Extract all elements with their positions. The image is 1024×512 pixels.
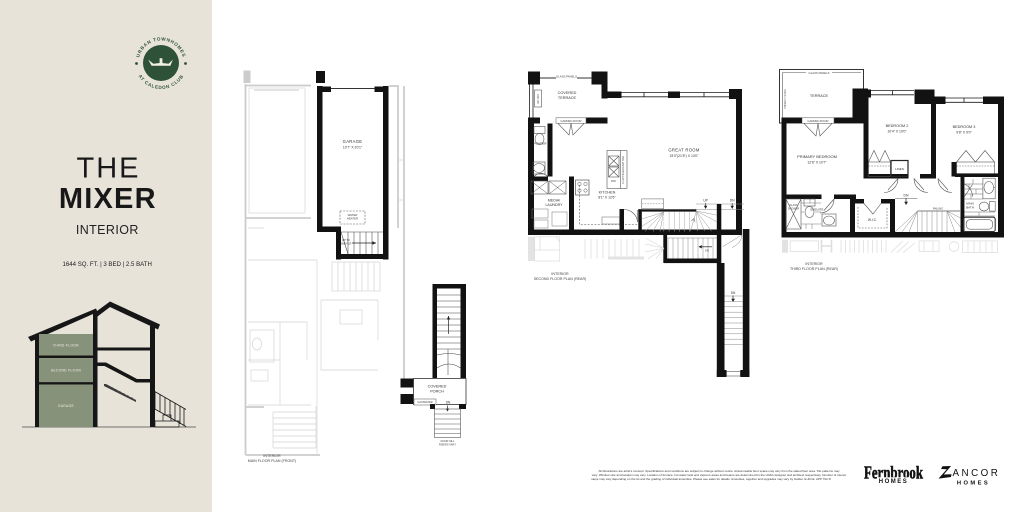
svg-text:INTERIOR: INTERIOR (263, 454, 281, 458)
svg-text:DOOR SILL: DOOR SILL (441, 439, 455, 443)
svg-text:RAILING: RAILING (933, 207, 943, 211)
svg-text:DN: DN (730, 199, 735, 203)
svg-text:INTERIOR: INTERIOR (76, 223, 139, 237)
svg-text:PORCH: PORCH (430, 390, 444, 394)
svg-text:HOMES: HOMES (957, 481, 990, 487)
svg-text:DN: DN (446, 401, 451, 405)
svg-text:POWDER: POWDER (533, 142, 546, 146)
svg-text:GREAT ROOM: GREAT ROOM (668, 148, 699, 153)
svg-text:10'7" X 20'1": 10'7" X 20'1" (343, 146, 363, 150)
svg-text:FLUSH BREAKFAST BAR: FLUSH BREAKFAST BAR (622, 156, 625, 184)
svg-text:THIRD FLOOR: THIRD FLOOR (53, 344, 79, 348)
svg-text:GAS/WATER: GAS/WATER (417, 400, 432, 404)
svg-text:A/C PAD: A/C PAD (537, 94, 540, 104)
svg-text:HOMES: HOMES (879, 479, 909, 485)
svg-text:2ND FLR: 2ND FLR (341, 242, 352, 246)
svg-text:UP TO: UP TO (342, 238, 350, 242)
svg-text:GLASS PANELS: GLASS PANELS (809, 71, 830, 75)
svg-text:THE: THE (77, 152, 141, 184)
svg-text:BEDROOM 3: BEDROOM 3 (953, 125, 976, 129)
svg-text:12'6" X 10'7": 12'6" X 10'7" (807, 161, 827, 165)
svg-text:SECOND FLOOR PLAN (REAR): SECOND FLOOR PLAN (REAR) (534, 277, 587, 281)
svg-text:THIRD FLOOR PLAN (REAR): THIRD FLOOR PLAN (REAR) (790, 267, 838, 271)
svg-text:1644 SQ. FT. | 3 BED | 2.5 BAT: 1644 SQ. FT. | 3 BED | 2.5 BATH (62, 261, 151, 268)
svg-text:GARDEN DOOR: GARDEN DOOR (807, 119, 828, 123)
svg-text:GLASS PANELS: GLASS PANELS (556, 74, 577, 78)
svg-text:DW: DW (611, 179, 616, 183)
svg-text:9'8" X 9'0": 9'8" X 9'0" (956, 131, 972, 135)
svg-text:15'0"(21'8") X 13'0": 15'0"(21'8") X 13'0" (670, 154, 700, 158)
svg-text:COVERED: COVERED (558, 91, 577, 95)
svg-text:DN: DN (904, 194, 909, 198)
svg-text:SECOND FLOOR: SECOND FLOOR (51, 369, 82, 373)
svg-text:BEDROOM 2: BEDROOM 2 (886, 124, 909, 128)
svg-text:GARAGE: GARAGE (343, 139, 363, 144)
svg-text:8'1" X 12'6": 8'1" X 12'6" (598, 196, 616, 200)
svg-text:LAUNDRY: LAUNDRY (545, 203, 563, 207)
svg-text:MEDIA/: MEDIA/ (548, 199, 560, 203)
svg-text:KITCHEN: KITCHEN (599, 191, 616, 195)
svg-text:SHOWER: SHOWER (788, 208, 799, 211)
svg-text:MIXER: MIXER (59, 183, 157, 215)
svg-text:GARDEN DOOR: GARDEN DOOR (560, 119, 581, 123)
svg-text:ANCOR: ANCOR (953, 468, 1001, 479)
svg-text:DN: DN (731, 291, 736, 295)
svg-text:GARAGE: GARAGE (58, 404, 74, 408)
svg-text:10'4" X 10'0": 10'4" X 10'0" (887, 130, 907, 134)
svg-text:INTERIOR: INTERIOR (805, 262, 823, 266)
svg-text:LINEN: LINEN (895, 167, 904, 171)
svg-text:RISERS VARY: RISERS VARY (439, 443, 456, 447)
svg-text:COVERED: COVERED (428, 385, 447, 389)
svg-text:PRIVACY FENCE: PRIVACY FENCE (784, 89, 787, 109)
svg-text:W.I.C.: W.I.C. (868, 218, 877, 222)
svg-text:TERRACE: TERRACE (810, 94, 829, 98)
svg-text:BATH: BATH (966, 206, 974, 210)
svg-text:steps may vary depending on th: steps may vary depending on the lot and … (591, 477, 831, 481)
svg-text:UP: UP (703, 199, 708, 203)
svg-text:INTERIOR: INTERIOR (551, 272, 569, 276)
svg-text:HEATER: HEATER (347, 217, 358, 221)
svg-text:ENSUITE: ENSUITE (810, 208, 823, 212)
svg-text:DN: DN (705, 249, 709, 253)
svg-text:PRIMARY BEDROOM: PRIMARY BEDROOM (797, 154, 837, 159)
svg-text:TERRACE: TERRACE (558, 96, 577, 100)
svg-text:MAIN FLOOR PLAN (FRONT): MAIN FLOOR PLAN (FRONT) (248, 459, 297, 463)
